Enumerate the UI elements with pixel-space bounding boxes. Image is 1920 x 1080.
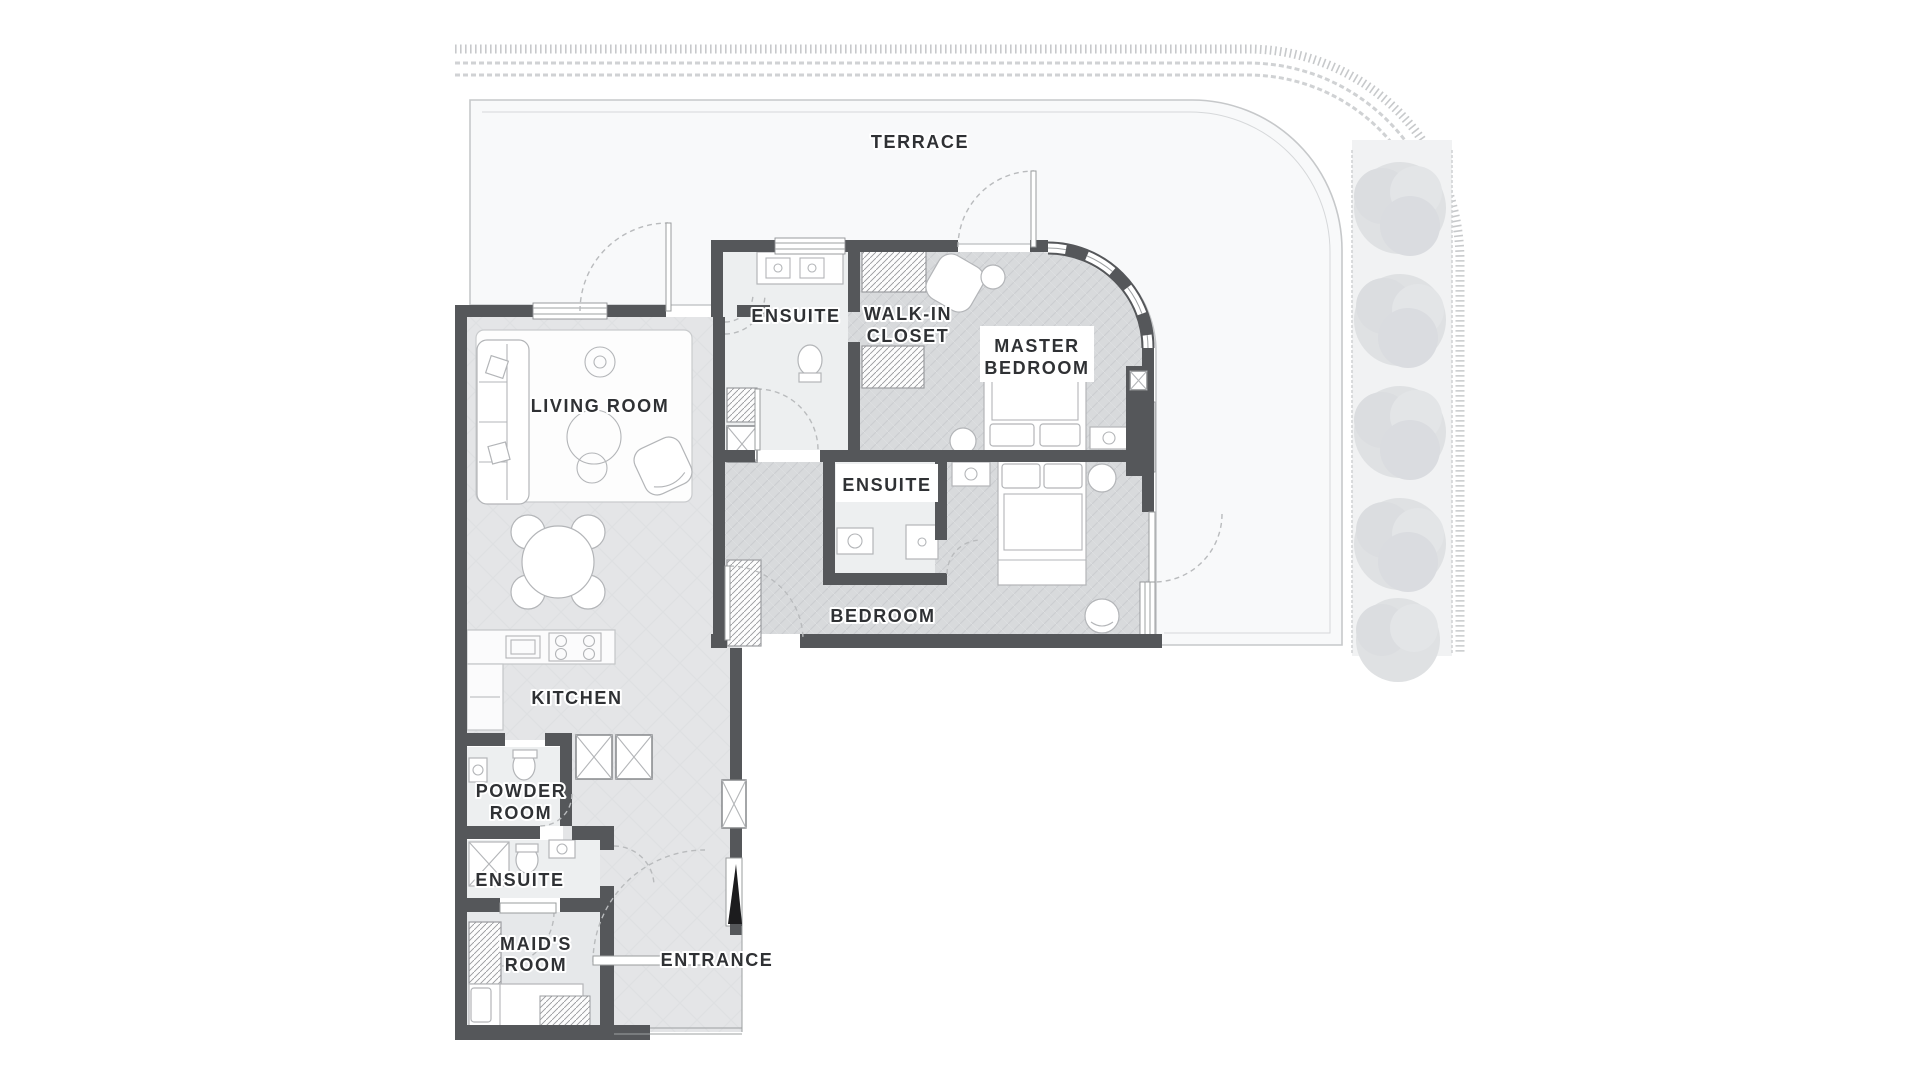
floor-plan: TERRACE ENSUITE WALK-IN CLOSET MASTER BE…	[0, 0, 1920, 1080]
room-label-powder-2: ROOM	[490, 803, 552, 823]
wall-maid-ensuite-right	[600, 840, 614, 850]
bedroom-round-table	[1088, 464, 1116, 492]
sofa	[477, 340, 529, 504]
bedroom-armchair	[1085, 599, 1119, 633]
vanity	[837, 528, 873, 554]
hall-closet	[576, 735, 612, 779]
room-label-powder-1: POWDER	[476, 781, 567, 801]
wall-kitchen-bottom	[455, 733, 505, 746]
toilet	[516, 844, 538, 873]
room-label-living: LIVING ROOM	[531, 396, 670, 416]
wall-left	[455, 305, 467, 1040]
tree-strip	[1352, 140, 1452, 682]
room-label-bedroom: BEDROOM	[830, 606, 935, 626]
room-label-maid-ensuite: ENSUITE	[475, 870, 564, 890]
wall-divider	[713, 450, 755, 462]
duct-shaft	[722, 780, 746, 828]
washbasin	[549, 840, 575, 858]
wardrobe	[862, 250, 926, 292]
wall-living-top	[455, 305, 533, 317]
window	[533, 303, 607, 319]
room-label-master-ensuite: ENSUITE	[751, 306, 840, 326]
window	[1140, 582, 1155, 638]
room-label-walk-in-2: CLOSET	[867, 326, 950, 346]
pouf	[981, 265, 1005, 289]
bedroom-wardrobe	[727, 560, 761, 646]
hall-shelf	[727, 388, 757, 422]
hall-closet	[616, 735, 652, 779]
wall-bedroom-left	[713, 462, 725, 634]
wall-ensuite-partition	[848, 252, 860, 312]
wall-maid-right	[600, 912, 614, 1025]
shower	[906, 525, 938, 559]
wall-suite-left	[711, 240, 723, 317]
bedroom-bed	[998, 458, 1086, 585]
room-label-walk-in-1: WALK-IN	[864, 304, 952, 324]
toilet	[798, 345, 822, 382]
wardrobe	[862, 346, 924, 388]
wall-living-right	[713, 317, 725, 450]
room-label-maid-2: ROOM	[505, 955, 567, 975]
maid-rug	[540, 996, 590, 1026]
wall-bedroom-ensuite	[823, 450, 835, 585]
wall-maid-ensuite-bottom	[455, 898, 500, 912]
room-label-maid-1: MAID'S	[500, 934, 572, 954]
room-label-kitchen: KITCHEN	[531, 688, 622, 708]
room-label-entrance: ENTRANCE	[661, 950, 774, 970]
maid-wardrobe	[469, 922, 501, 984]
master-nightstand	[1090, 427, 1128, 449]
dining-set	[511, 515, 605, 609]
wall-bottom	[455, 1025, 650, 1040]
floor-plan-page: TERRACE ENSUITE WALK-IN CLOSET MASTER BE…	[0, 0, 1920, 1080]
dining-table	[522, 526, 594, 598]
tree	[1356, 598, 1440, 682]
room-label-terrace: TERRACE	[871, 132, 969, 152]
room-label-master-1: MASTER	[994, 336, 1080, 356]
entrance-floor	[614, 912, 742, 1032]
room-label-bedroom-ensuite: ENSUITE	[842, 475, 931, 495]
washbasin	[469, 758, 487, 782]
wall-powder-bottom	[455, 826, 540, 839]
room-label-master-2: BEDROOM	[984, 358, 1089, 378]
bedroom-nightstand	[952, 462, 990, 486]
window	[775, 238, 845, 254]
